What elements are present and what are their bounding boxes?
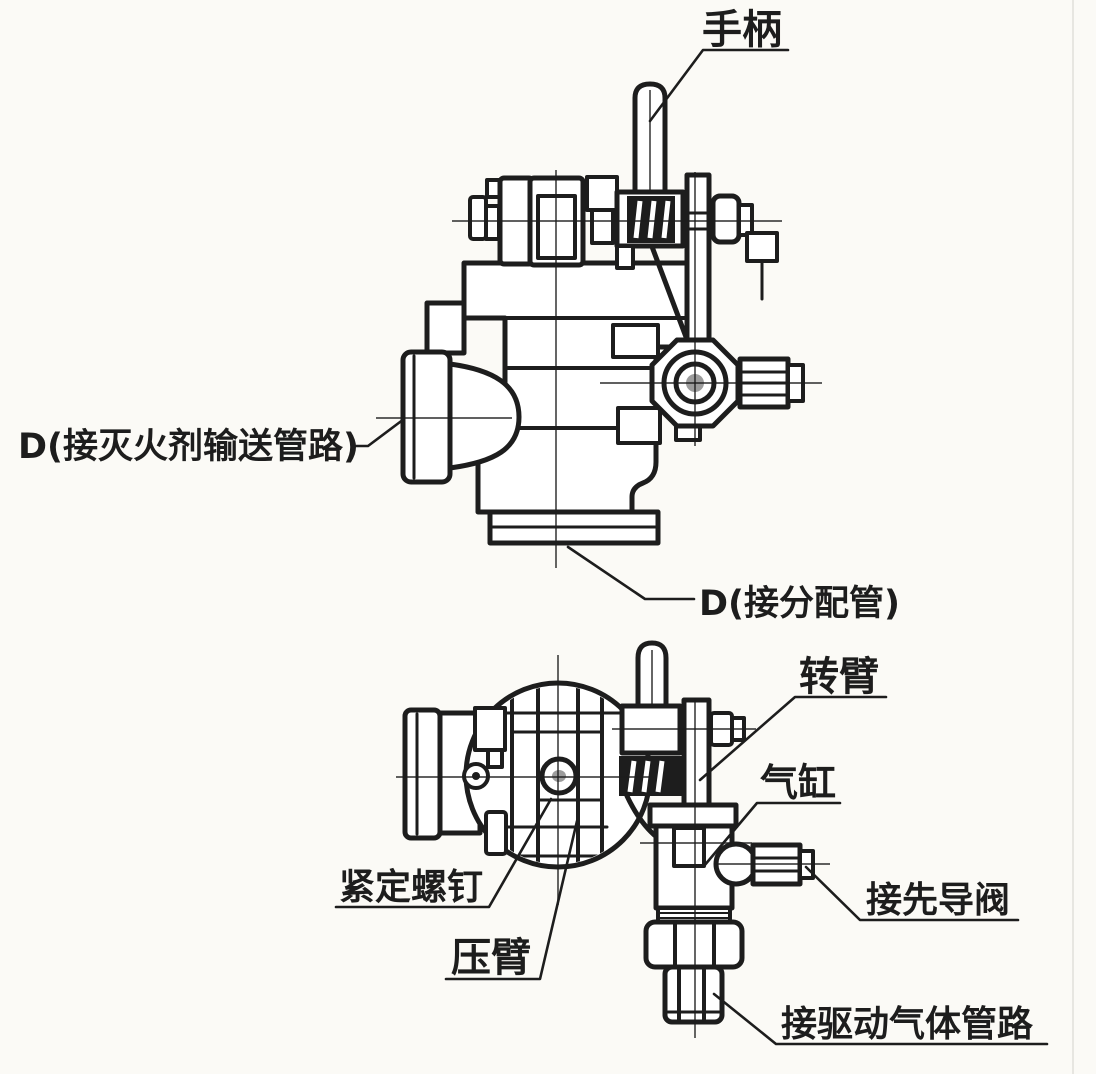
leader-handle: [650, 50, 788, 121]
body-left-step: [427, 303, 464, 353]
set-screw-circle: [542, 759, 576, 793]
leader-port-dist: [568, 547, 694, 599]
label-driving-gas: 接驱动气体管路: [781, 1004, 1034, 1045]
handle-stub: [638, 643, 666, 712]
outlet-flange: [490, 512, 658, 543]
handle: [635, 84, 665, 198]
valve-diagram: 手柄 D(接灭火剂输送管路) D(接分配管) 转臂 气缸 紧定螺钉 压臂 接先导…: [0, 0, 1096, 1074]
leader-port-main: [352, 419, 404, 446]
left-bolt-icon: [470, 197, 486, 239]
spring-block: [628, 197, 674, 242]
label-pilot-valve: 接先导阀: [866, 880, 1010, 921]
label-gas-cylinder: 气缸: [760, 761, 836, 805]
hex-nut: [646, 922, 742, 967]
label-set-screw: 紧定螺钉: [339, 867, 483, 908]
right-bolt-icon: [713, 196, 739, 242]
t-block: [587, 177, 617, 210]
right-plate: [747, 233, 777, 261]
spring-block-side: [620, 757, 684, 795]
side-flange: [405, 710, 440, 838]
label-port-dist: D(接分配管): [699, 584, 900, 624]
screw-boss: [475, 708, 505, 750]
front-view: [376, 84, 822, 568]
label-handle: 手柄: [702, 7, 782, 53]
label-pressure-arm: 压臂: [451, 935, 531, 981]
label-port-main: D(接灭火剂输送管路): [18, 427, 359, 467]
label-rotating-arm: 转臂: [799, 654, 879, 700]
